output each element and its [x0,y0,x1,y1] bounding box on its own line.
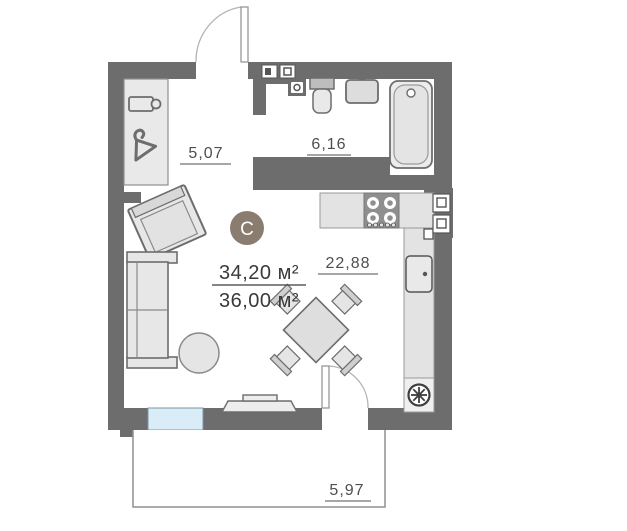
door-leaf [241,7,248,62]
stove-icon [364,193,399,228]
pouf-icon [179,333,219,373]
door-leaf [322,366,329,408]
kitchen-counter-right [404,228,434,378]
wardrobe [123,79,168,185]
wall-segment [108,62,124,425]
wall-segment [248,62,452,79]
shelf-icon [129,97,161,111]
vent-fan-icon [404,378,434,412]
kitchen-sink-icon [406,256,432,292]
valve-box [424,229,433,239]
dining-chair-icon [330,344,362,376]
bathroom-area-label: 6,16 [311,136,346,153]
tv-stand-icon [222,395,297,412]
wardrobe-body [124,79,168,185]
hallway-area-label: 5,07 [188,145,223,162]
apartment-area-block: C 34,20 м² 36,00 м² [212,211,306,312]
wall-segment [124,192,141,203]
floor-plan: 5,07 6,16 22,88 5,97 C 34,20 м² 36,00 м² [0,0,627,531]
dining-chair-icon [330,284,362,316]
wall-segment [108,408,148,430]
drain [407,89,415,97]
compass-label: C [240,219,254,240]
wall-segment [253,79,266,115]
window-icon [148,408,203,430]
water-heater-icon [288,79,306,96]
toilet-icon [310,78,334,113]
entrance-door-icon [196,7,248,62]
sink-drain [423,272,427,276]
balcony-area-label: 5,97 [329,482,364,499]
wall-segment [253,157,390,190]
sofa-icon [127,252,177,368]
washbasin-icon [346,78,378,103]
wall-segment [390,175,434,190]
door-swing-arc [196,7,241,62]
dining-chair-icon [270,344,302,376]
total-space-value: 36,00 м² [219,290,299,312]
living-space-value: 34,20 м² [219,262,299,284]
bathtub-icon [390,81,432,168]
wall-segment [434,62,452,430]
living-kitchen-area-label: 22,88 [325,255,370,272]
